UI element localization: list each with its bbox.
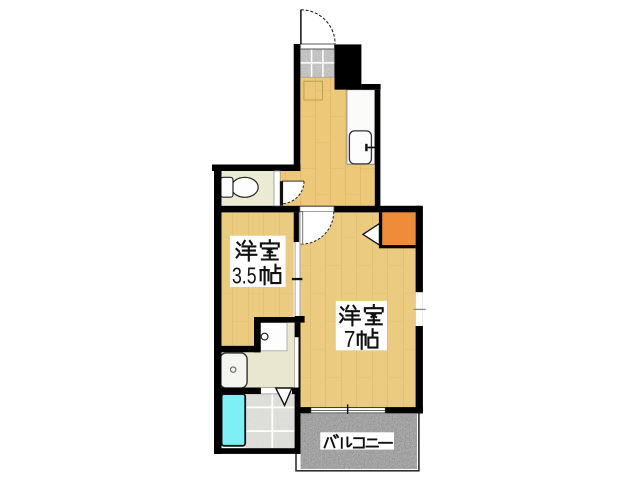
svg-text:3.5: 3.5	[232, 262, 257, 288]
svg-text:7: 7	[344, 326, 356, 352]
